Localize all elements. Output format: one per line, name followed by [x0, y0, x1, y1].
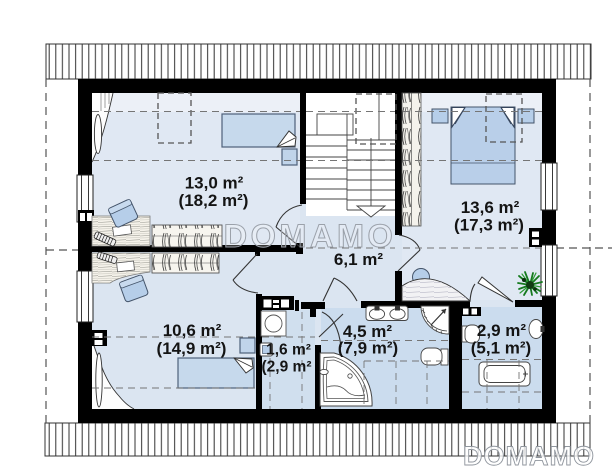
svg-text:1,6 m²: 1,6 m² [266, 342, 311, 359]
svg-text:(18,2 m²): (18,2 m²) [179, 191, 249, 210]
svg-text:13,0 m²: 13,0 m² [185, 174, 244, 193]
svg-text:2,9 m²: 2,9 m² [477, 321, 526, 340]
svg-text:DOMAMO: DOMAMO [463, 441, 595, 470]
svg-text:(5,1 m²): (5,1 m²) [471, 339, 531, 358]
svg-text:(14,9 m²): (14,9 m²) [157, 339, 227, 358]
svg-text:(7,9 m²): (7,9 m²) [338, 339, 398, 358]
svg-text:DOMAMO: DOMAMO [224, 218, 397, 254]
svg-text:(2,9 m²: (2,9 m² [262, 359, 312, 376]
svg-text:(17,3 m²): (17,3 m²) [454, 216, 524, 235]
svg-text:13,6 m²: 13,6 m² [461, 198, 520, 217]
svg-text:10,6 m²: 10,6 m² [163, 321, 222, 340]
